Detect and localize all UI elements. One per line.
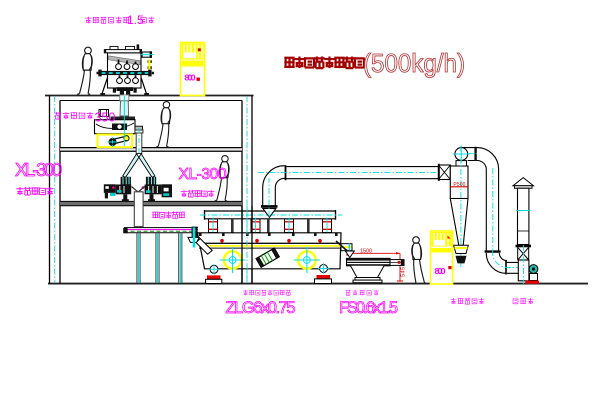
- svg-text:FS0.6x1.5: FS0.6x1.5: [339, 299, 398, 317]
- svg-text:800: 800: [185, 73, 196, 83]
- svg-text:XL-300: XL-300: [179, 166, 227, 183]
- svg-text:XL-300: XL-300: [15, 159, 62, 180]
- svg-text:P500: P500: [453, 182, 465, 188]
- svg-text:800: 800: [435, 266, 446, 276]
- svg-text:(500kg/h): (500kg/h): [363, 48, 465, 78]
- svg-text:1.5: 1.5: [127, 13, 144, 27]
- svg-text:1500: 1500: [360, 248, 372, 254]
- svg-text:ZLG6x0.75: ZLG6x0.75: [226, 299, 296, 317]
- svg-text:545: 545: [401, 267, 407, 277]
- svg-text:350: 350: [95, 111, 116, 125]
